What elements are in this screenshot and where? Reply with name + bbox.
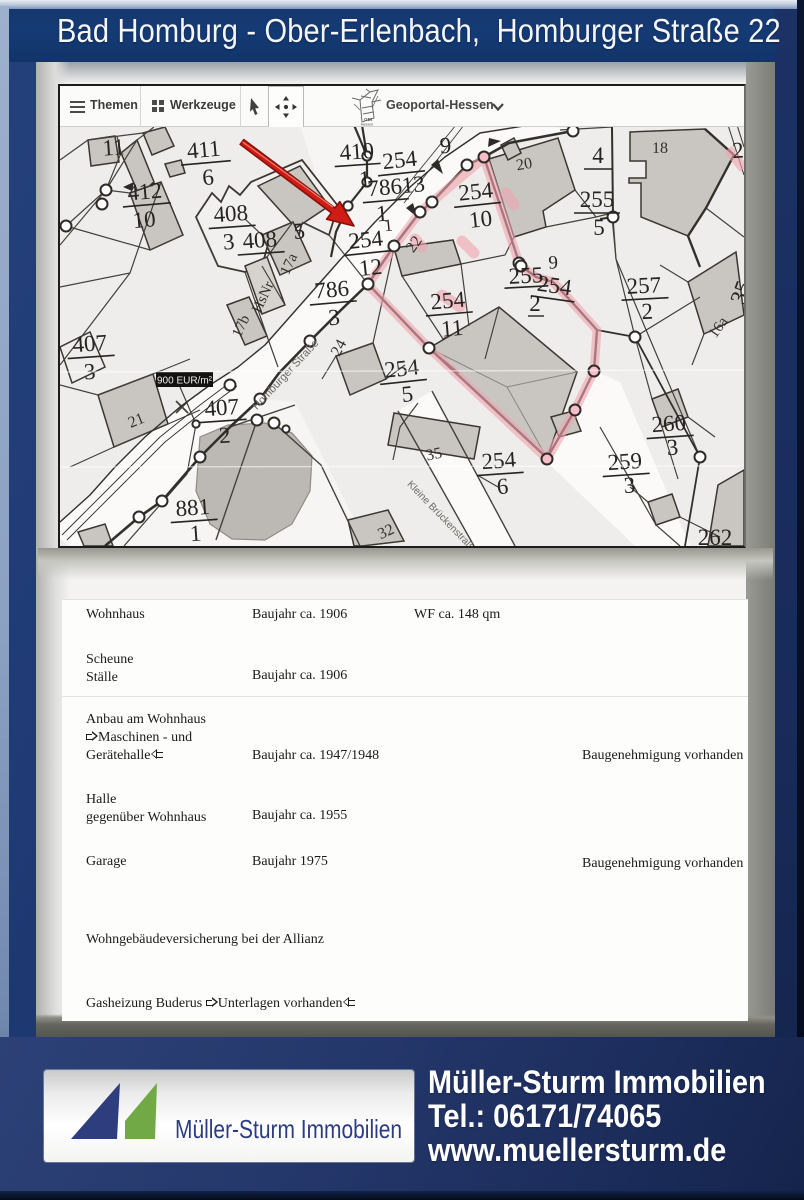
- svg-text:6: 6: [496, 473, 509, 499]
- svg-text:254: 254: [481, 447, 518, 474]
- svg-text:20: 20: [515, 155, 534, 175]
- svg-text:260: 260: [651, 410, 687, 437]
- svg-text:786: 786: [313, 276, 350, 304]
- svg-text:407: 407: [72, 330, 108, 357]
- svg-text:2: 2: [529, 291, 541, 316]
- svg-text:408: 408: [242, 226, 278, 253]
- svg-text:1: 1: [189, 521, 202, 546]
- svg-text:407: 407: [204, 394, 240, 421]
- svg-text:2: 2: [641, 299, 654, 325]
- svg-text:412: 412: [126, 178, 163, 206]
- svg-text:9: 9: [439, 133, 452, 159]
- svg-text:2: 2: [218, 422, 231, 448]
- svg-text:4: 4: [592, 143, 604, 168]
- svg-text:5: 5: [293, 218, 306, 244]
- svg-text:254: 254: [347, 225, 384, 254]
- svg-text:254: 254: [381, 146, 418, 175]
- svg-text:254: 254: [536, 271, 574, 301]
- svg-text:255: 255: [580, 187, 615, 212]
- svg-text:254: 254: [429, 287, 466, 315]
- svg-text:410: 410: [339, 138, 375, 165]
- svg-text:10: 10: [468, 206, 493, 233]
- svg-text:GDI: GDI: [364, 117, 372, 122]
- svg-text:262: 262: [698, 525, 733, 546]
- svg-text:254: 254: [383, 354, 420, 383]
- svg-text:11: 11: [440, 315, 464, 342]
- svg-text:9: 9: [548, 252, 559, 273]
- svg-text:259: 259: [607, 448, 643, 475]
- svg-text:Hessen: Hessen: [361, 123, 373, 127]
- svg-text:5: 5: [593, 215, 605, 240]
- svg-text:257: 257: [626, 272, 662, 299]
- svg-text:411: 411: [186, 136, 222, 164]
- svg-text:3: 3: [623, 472, 636, 498]
- svg-text:11: 11: [102, 134, 126, 160]
- svg-text:881: 881: [175, 494, 211, 521]
- svg-text:786: 786: [366, 173, 403, 201]
- svg-text:6: 6: [201, 164, 215, 190]
- svg-text:254: 254: [731, 136, 744, 163]
- svg-text:408: 408: [213, 200, 249, 227]
- svg-text:254: 254: [457, 177, 494, 206]
- svg-text:3: 3: [327, 304, 341, 330]
- svg-text:900 EUR/m²: 900 EUR/m²: [157, 376, 213, 387]
- svg-text:3: 3: [222, 229, 235, 255]
- svg-text:3: 3: [666, 434, 679, 460]
- svg-text:13: 13: [401, 171, 426, 198]
- svg-text:18: 18: [652, 140, 668, 157]
- svg-text:12: 12: [358, 254, 383, 281]
- svg-text:10: 10: [132, 206, 157, 233]
